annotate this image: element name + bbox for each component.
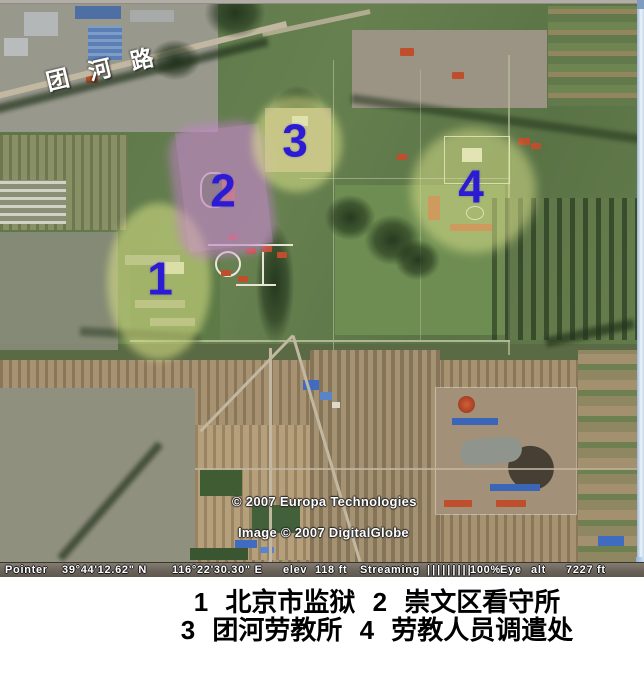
building-red-roof bbox=[444, 500, 472, 507]
building-red-roof bbox=[496, 500, 526, 507]
tree-cluster bbox=[395, 240, 440, 280]
terrain-urban-bottomleft bbox=[0, 388, 195, 562]
elev-label: elev bbox=[283, 563, 307, 578]
eye-label: Eye bbox=[500, 563, 522, 578]
building-red-roof bbox=[400, 48, 414, 56]
building-blue-roof bbox=[235, 540, 257, 548]
building-red-roof bbox=[221, 270, 231, 276]
scrollbar-arrow-cap[interactable] bbox=[637, 0, 644, 9]
elev-value: 118 ft bbox=[315, 563, 347, 578]
terrain-village bbox=[352, 30, 547, 108]
terrain-field-strips-right bbox=[578, 350, 644, 562]
building-gray bbox=[130, 10, 174, 22]
road-horizontal bbox=[195, 468, 644, 470]
building-blue-roof bbox=[452, 418, 498, 425]
pointer-longitude: 116°22'30.30" E bbox=[172, 563, 263, 578]
streaming-bars: ||||||||| bbox=[427, 563, 473, 578]
tree-cluster bbox=[150, 40, 200, 80]
compound-red-structure bbox=[458, 396, 475, 413]
pointer-latitude: 39°44'12.62" N bbox=[62, 563, 147, 578]
building-red-roof bbox=[277, 252, 287, 258]
building-red-roof bbox=[238, 276, 248, 282]
pointer-label: Pointer bbox=[5, 563, 48, 578]
caption-area: 1 北京市监狱 2 崇文区看守所 3 团河劳教所 4 劳教人员调遣处 bbox=[0, 577, 644, 680]
building-blue-roof bbox=[75, 6, 121, 19]
building-red-roof bbox=[531, 143, 541, 149]
terrain-greenhouses bbox=[0, 180, 66, 224]
marker-number-3: 3 bbox=[282, 118, 308, 164]
terrain-crop-patch bbox=[200, 470, 242, 496]
building-red-roof bbox=[518, 138, 530, 145]
building-blue-roof bbox=[320, 392, 332, 400]
building-gray bbox=[4, 38, 28, 56]
status-bar: Pointer 39°44'12.62" N 116°22'30.30" E e… bbox=[0, 562, 644, 577]
alt-label: alt bbox=[531, 563, 546, 578]
building-red-roof bbox=[452, 72, 464, 79]
tree-cluster bbox=[205, 0, 265, 38]
path bbox=[236, 284, 276, 286]
marker-number-1: 1 bbox=[147, 256, 173, 302]
building-blue-roof bbox=[490, 484, 540, 491]
satellite-map[interactable]: 团 河 路 bbox=[0, 0, 644, 562]
copyright-digitalglobe: Image © 2007 DigitalGlobe bbox=[238, 525, 409, 540]
building-gray bbox=[24, 12, 58, 36]
building-white bbox=[332, 402, 340, 408]
streaming-percent: 100% bbox=[470, 563, 501, 578]
window-top-edge bbox=[0, 0, 644, 4]
terrain-field-strips-right bbox=[548, 6, 640, 106]
vertical-scrollbar[interactable] bbox=[637, 0, 644, 559]
copyright-europa: © 2007 Europa Technologies bbox=[232, 494, 417, 509]
screenshot-root: 团 河 路 bbox=[0, 0, 644, 680]
caption-line-2: 3 团河劳教所 4 劳教人员调遣处 bbox=[110, 610, 644, 647]
streaming-label: Streaming bbox=[360, 563, 420, 578]
marker-number-2: 2 bbox=[210, 168, 236, 214]
building-red-roof bbox=[397, 154, 407, 160]
alt-value: 7227 ft bbox=[566, 563, 606, 578]
marker-number-4: 4 bbox=[458, 164, 484, 210]
building-blue-roof bbox=[598, 536, 624, 546]
terrain-crop-patch bbox=[190, 548, 248, 560]
